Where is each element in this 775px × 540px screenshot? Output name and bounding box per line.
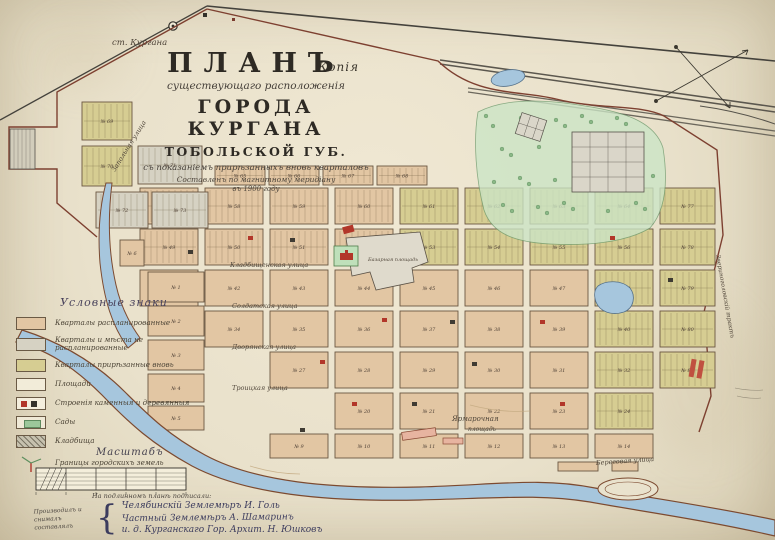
map-subtitle: съ показаніемъ прирѣзанныхъ вновь кварта… xyxy=(140,163,372,173)
signatures: Производилъ и снималъ составлялъ { Челяб… xyxy=(34,500,364,536)
map-subtitle: Составленъ по магнитному меридіану xyxy=(140,175,372,184)
block-number: № 50 xyxy=(227,245,242,251)
block-number: № 30 xyxy=(487,368,502,374)
block-number: № 69 xyxy=(100,119,115,125)
block-number: № 24 xyxy=(617,409,631,415)
legend-item: Сады xyxy=(16,416,216,429)
station-building-icon xyxy=(203,13,207,17)
signal-icon xyxy=(232,18,235,21)
map-subtitle: въ 1900 году xyxy=(140,185,372,193)
block-number: № 1 xyxy=(170,285,181,291)
block-number: № 10 xyxy=(357,444,372,450)
signature-lines: Челябинскій Землемѣръ И. Голь Частный Зе… xyxy=(122,500,323,536)
square-label: площадь xyxy=(468,426,496,433)
block-number: № 21 xyxy=(422,409,436,415)
tree-icon xyxy=(545,211,549,215)
block-number: № 23 xyxy=(552,409,566,415)
tree-icon xyxy=(527,182,531,186)
surveyor-note: Производилъ и снималъ составлялъ xyxy=(33,505,92,531)
legend-item: Кладбища xyxy=(16,435,216,448)
brace-glyph: { xyxy=(96,501,118,535)
street-label: Кладбищенская улица xyxy=(229,261,308,269)
city-name: ГОРОДА КУРГАНА xyxy=(140,96,372,140)
block-number: № 54 xyxy=(487,245,501,251)
building-icon xyxy=(412,402,417,406)
tree-icon xyxy=(634,201,638,205)
block-number: № 39 xyxy=(552,327,567,333)
block-number: № 32 xyxy=(617,368,631,374)
tree-icon xyxy=(589,120,593,124)
legend-label: Кварталы и мѣста не распланированные xyxy=(55,336,216,353)
block-number: № 58 xyxy=(227,204,241,210)
legend-item: Кварталы распланированные xyxy=(16,317,216,330)
building-icon xyxy=(290,238,295,242)
road-label: Звериноголовскій трактъ xyxy=(714,254,736,339)
province-name: ТОБОЛЬСКОЙ ГУБ. xyxy=(140,144,372,159)
tree-icon xyxy=(536,205,540,209)
legend-label: Кладбища xyxy=(55,437,94,445)
swatch-buildings xyxy=(16,397,46,410)
compass-cross xyxy=(655,46,749,109)
legend-label: Строенія каменныя и деревянныя xyxy=(55,399,189,407)
compass-end-dot xyxy=(675,46,678,49)
street-label: Солдатская улица xyxy=(232,302,298,310)
block-number: № 28 xyxy=(357,368,371,374)
meridian-arrow xyxy=(656,50,748,101)
block-number: № 46 xyxy=(487,286,502,292)
building-icon xyxy=(540,320,545,324)
block-number: № 77 xyxy=(680,204,695,210)
swatch-gardens xyxy=(16,416,46,429)
block-number: № 37 xyxy=(422,327,437,333)
legend-label: Границы городскихъ земель xyxy=(55,459,164,467)
legend-item: Площади xyxy=(16,378,216,391)
tree-icon xyxy=(537,145,541,149)
block-number: № 49 xyxy=(162,245,177,251)
block-number: № 45 xyxy=(422,286,436,292)
swatch-unplanned-blocks xyxy=(16,338,46,351)
railway-track xyxy=(440,60,775,107)
block-number: № 31 xyxy=(552,368,566,374)
tree-icon xyxy=(491,124,495,128)
station-label: ст. Кургана xyxy=(112,38,167,48)
block-number: № 43 xyxy=(292,286,306,292)
tree-icon xyxy=(580,114,584,118)
building xyxy=(443,438,463,444)
legend-label: Площади xyxy=(55,380,91,388)
block-number: № 55 xyxy=(552,245,566,251)
swatch-new-blocks xyxy=(16,359,46,372)
block-number: № 35 xyxy=(292,327,306,333)
railway-siding-curve xyxy=(700,106,775,124)
church-icon xyxy=(345,250,348,253)
pond xyxy=(595,282,634,314)
block-number: № 27 xyxy=(292,368,307,374)
west-annex-block xyxy=(10,129,35,169)
map-sheet: № 57№ 58№ 59№ 60№ 61№ 62№ 63№ 64№ 77№ 49… xyxy=(0,0,775,540)
swatch-planned-blocks xyxy=(16,317,46,330)
city-block xyxy=(558,462,598,471)
tree-icon xyxy=(518,176,522,180)
swatch-squares xyxy=(16,378,46,391)
signature: Частный Землемѣръ А. Шамаринъ xyxy=(122,511,323,525)
block-number: № 29 xyxy=(422,368,437,374)
block-number: № 56 xyxy=(617,245,632,251)
tree-icon xyxy=(562,201,566,205)
legend-label: Сады xyxy=(55,418,75,426)
tree-icon xyxy=(500,147,504,151)
block-number: № 72 xyxy=(115,208,129,214)
block-number: № 34 xyxy=(227,327,241,333)
block-number: № 13 xyxy=(552,444,566,450)
block-number: № 9 xyxy=(293,444,304,450)
map-title: ПЛАНЪ xyxy=(140,50,372,77)
compass-end-dot xyxy=(655,100,658,103)
scale-heading: Масштабъ xyxy=(96,447,164,458)
tree-icon xyxy=(624,122,628,126)
pencil-annotation xyxy=(735,388,763,398)
building-icon xyxy=(472,362,477,366)
building-icon xyxy=(188,250,193,254)
street-label: Дворянская улица xyxy=(231,343,296,351)
tree-icon xyxy=(563,124,567,128)
block-number: № 40 xyxy=(617,327,632,333)
block-number: № 42 xyxy=(227,286,241,292)
block-number: № 51 xyxy=(292,245,306,251)
tree-icon xyxy=(643,207,647,211)
tree-icon xyxy=(510,209,514,213)
building-icon xyxy=(248,236,253,240)
tree-icon xyxy=(553,178,557,182)
signature: и. д. Курганскаго Гор. Архит. Н. Юшковъ xyxy=(122,524,323,536)
tree-icon xyxy=(501,203,505,207)
square-label: Базарная площадь xyxy=(367,257,418,263)
tree-icon xyxy=(615,116,619,120)
lake xyxy=(490,67,526,89)
park-grove xyxy=(476,101,666,245)
block-number: № 61 xyxy=(422,204,436,210)
legend-heading: Условные знаки xyxy=(60,296,216,309)
map-subtitle: существующаго расположенія xyxy=(140,80,372,92)
tree-icon xyxy=(571,207,575,211)
block-number: № 68 xyxy=(395,174,409,180)
building-icon xyxy=(610,236,615,240)
block-number: № 59 xyxy=(292,204,307,210)
building-icon xyxy=(560,402,565,406)
map-title-block: ПЛАНЪ существующаго расположенія ГОРОДА … xyxy=(140,50,372,193)
block-number: № 12 xyxy=(487,444,501,450)
legend-item: Кварталы прирѣзанные вновь xyxy=(16,359,216,372)
boundary-symbol-icon xyxy=(16,454,46,474)
block-number: № 6 xyxy=(126,251,137,257)
block-number: № 20 xyxy=(357,409,372,415)
building-icon xyxy=(320,360,325,364)
block-number: № 11 xyxy=(422,444,436,450)
legend-label: Кварталы распланированные xyxy=(55,319,170,327)
block-number: № 60 xyxy=(357,204,372,210)
tree-icon xyxy=(509,153,513,157)
building-icon xyxy=(382,318,387,322)
building-icon xyxy=(300,428,305,432)
block-number: № 80 xyxy=(680,327,695,333)
block-number: № 78 xyxy=(680,245,694,251)
block-number: № 47 xyxy=(552,286,567,292)
legend-item: Строенія каменныя и деревянныя xyxy=(16,397,216,410)
signatures-block: На подлинномъ планѣ подписали: Производи… xyxy=(34,492,364,536)
tree-icon xyxy=(484,114,488,118)
legend-label: Кварталы прирѣзанные вновь xyxy=(55,361,174,369)
block-number: № 79 xyxy=(680,286,695,292)
block-number: № 73 xyxy=(173,208,187,214)
block-number: № 36 xyxy=(357,327,372,333)
signatures-caption: На подлинномъ планѣ подписали: xyxy=(92,492,364,500)
square-label: Ярмарочная xyxy=(451,415,499,423)
tree-icon xyxy=(492,180,496,184)
building-icon xyxy=(668,278,673,282)
building-icon xyxy=(450,320,455,324)
legend-item: Кварталы и мѣста не распланированные xyxy=(16,336,216,353)
tree-icon xyxy=(606,209,610,213)
building-icon xyxy=(352,402,357,406)
street-label: Троицкая улица xyxy=(232,384,288,392)
block-number: № 38 xyxy=(487,327,501,333)
church-icon xyxy=(340,253,353,260)
block-number: № 44 xyxy=(357,286,371,292)
block-number: № 14 xyxy=(617,444,631,450)
garden-oval xyxy=(598,478,658,500)
tree-icon xyxy=(651,174,655,178)
tree-icon xyxy=(554,118,558,122)
swatch-cemeteries xyxy=(16,435,46,448)
